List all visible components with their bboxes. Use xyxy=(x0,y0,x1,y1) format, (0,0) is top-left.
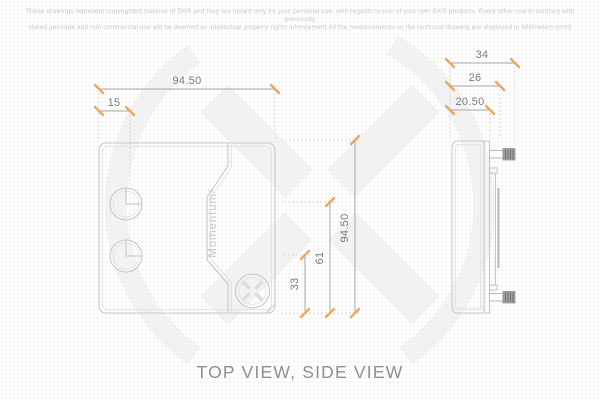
dim-port-inset-label: 15 xyxy=(108,97,121,109)
mounting-screw-top xyxy=(490,149,516,161)
side-body-outline xyxy=(452,141,484,313)
bracket-step-top xyxy=(490,168,498,173)
copyright-disclaimer: These drawings represent copyrighted mat… xyxy=(20,8,580,33)
side-flange xyxy=(484,141,490,313)
mounting-bracket-plate xyxy=(490,173,496,285)
side-body-inner-edge xyxy=(456,145,481,310)
dim-height-label: 94.50 xyxy=(339,213,351,242)
dim-width-label: 94.50 xyxy=(172,75,201,87)
product-name-label: Momentum² xyxy=(207,188,219,257)
dim-body-depth-label: 20.50 xyxy=(455,96,484,108)
technical-drawing: Momentum² 94.50 15 94.50 xyxy=(0,0,600,400)
dim-body-depth: 20.50 xyxy=(446,96,494,139)
ek-logo-badge xyxy=(236,274,270,308)
disclaimer-line-1: These drawings represent copyrighted mat… xyxy=(26,8,574,23)
port-hole-bottom xyxy=(110,240,142,272)
dim-port-inset: 15 xyxy=(95,97,134,186)
dim-port2-center: 33 xyxy=(284,251,311,317)
view-title: TOP VIEW, SIDE VIEW xyxy=(0,362,600,383)
mounting-screw-bottom xyxy=(490,292,516,304)
dim-port1-center: 61 xyxy=(284,198,336,317)
side-view-drawing xyxy=(452,141,515,313)
drawing-sheet: Momentum² 94.50 15 94.50 xyxy=(0,0,600,400)
dim-port2-label: 33 xyxy=(289,278,301,291)
disclaimer-line-2: stated personal and non commercial use w… xyxy=(28,24,571,31)
dim-port1-label: 61 xyxy=(314,252,326,265)
port-hole-top xyxy=(110,188,142,220)
dim-overall-depth-label: 34 xyxy=(476,49,489,61)
dim-mid-depth-label: 26 xyxy=(469,72,482,84)
bracket-step-bottom xyxy=(490,285,498,290)
dim-top-width: 94.50 xyxy=(95,75,279,139)
top-view-drawing: Momentum² xyxy=(99,143,275,313)
corner-chamfer xyxy=(266,305,275,314)
